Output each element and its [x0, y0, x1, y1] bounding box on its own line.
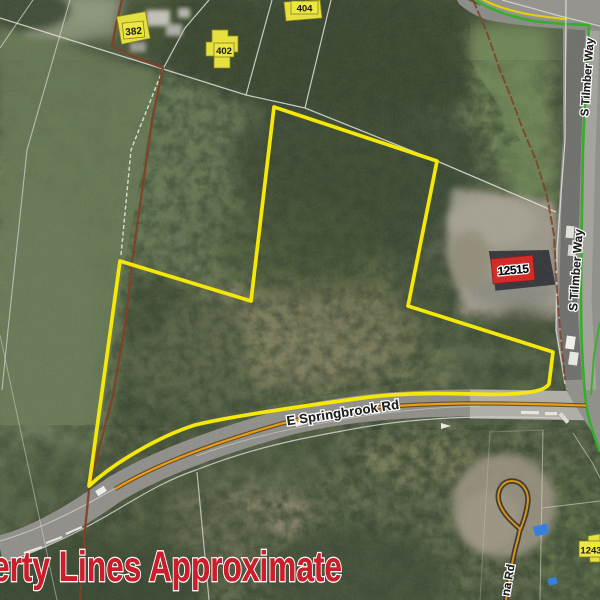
- svg-text:erty Lines Approximate: erty Lines Approximate: [0, 543, 342, 591]
